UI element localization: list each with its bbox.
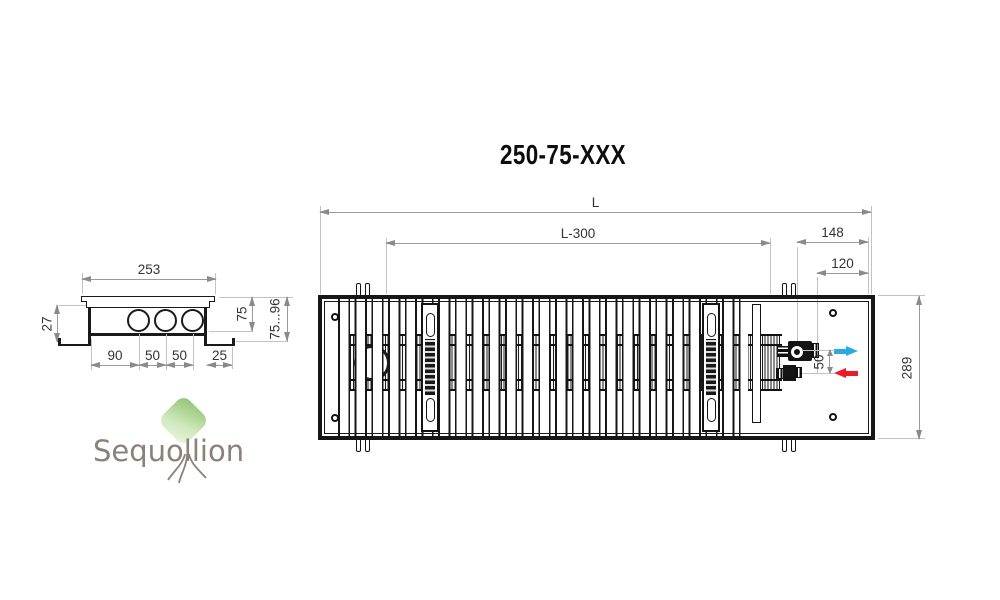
- dim-label: 50: [166, 348, 193, 363]
- flange-right-foot: [204, 344, 235, 347]
- anchor-tab: [365, 283, 370, 296]
- dim-pipe-gap: 50: [829, 350, 830, 373]
- dim-label: 75: [235, 306, 250, 321]
- pipe-circle-1: [127, 309, 150, 332]
- dim-label: 289: [900, 356, 915, 379]
- dim-label: 27: [40, 316, 55, 331]
- dim-arrow: [916, 430, 922, 440]
- bracket-slot: [426, 313, 435, 337]
- flange-left-foot: [58, 344, 91, 347]
- dim-left-height: 27: [57, 305, 58, 342]
- extension-line: [209, 331, 253, 332]
- dim-total-length: L: [320, 212, 871, 213]
- drawing-title: 250-75-XXX: [475, 139, 651, 171]
- top-view: [318, 295, 875, 440]
- dim-flange-overhang: 25: [207, 365, 232, 366]
- dim-total-width: 289: [919, 296, 920, 439]
- dim-pipe-spacing-3: 50: [166, 365, 193, 366]
- supply-arrow-head: [846, 346, 858, 356]
- bracket-slot: [707, 398, 716, 422]
- anchor-tab: [791, 439, 796, 452]
- dim-grille-length: L-300: [386, 243, 770, 244]
- bracket-slot: [426, 398, 435, 422]
- screw-hole: [331, 313, 339, 321]
- dim-arrow: [249, 296, 255, 306]
- dim-arrow: [284, 296, 290, 306]
- return-flow-arrow-icon: [834, 368, 858, 379]
- pipe-circle-2: [154, 309, 177, 332]
- dim-arrow: [249, 322, 255, 332]
- screw-hole: [331, 414, 339, 422]
- dim-arrow: [827, 367, 833, 374]
- flange-right-tick: [232, 338, 235, 347]
- screw-hole: [829, 309, 837, 317]
- anchor-tab: [356, 283, 361, 296]
- dim-arrow: [827, 349, 833, 356]
- brand-logo: Sequollion: [85, 398, 295, 488]
- pipe-circle-3: [181, 309, 204, 332]
- dim-height-range: 75...96: [287, 297, 288, 341]
- dim-arrow: [916, 295, 922, 305]
- dim-pipe-spacing-2: 50: [139, 365, 166, 366]
- dim-label: 90: [91, 348, 139, 363]
- dim-label: 50: [139, 348, 166, 363]
- dim-label: 148: [797, 225, 868, 240]
- anchor-tab: [365, 439, 370, 452]
- roll-up-grille-slats: [338, 299, 748, 436]
- extension-line: [871, 206, 872, 294]
- valve-lower-tip: [795, 367, 802, 378]
- dim-label: 25: [207, 348, 232, 363]
- extension-line: [868, 237, 869, 294]
- dim-label: 75...96: [268, 298, 283, 339]
- technical-drawing-page: 250-75-XXX 253 27: [0, 0, 1000, 600]
- dim-label: 253: [82, 262, 216, 277]
- dim-connection-offset-inner: 120: [817, 273, 868, 274]
- divider-slat: [752, 304, 761, 423]
- anchor-tab: [782, 283, 787, 296]
- anchor-tab: [782, 439, 787, 452]
- anchor-tab: [356, 439, 361, 452]
- dim-top-width: 253: [82, 279, 216, 280]
- mounting-bracket-right: [702, 303, 720, 432]
- dim-label: L: [320, 195, 871, 210]
- dim-connection-offset-outer: 148: [797, 242, 868, 243]
- extension-line: [386, 238, 387, 294]
- extension-line: [236, 341, 288, 342]
- supply-arrow-bar: [834, 349, 846, 354]
- dim-arrow: [284, 332, 290, 342]
- screw-hole: [829, 413, 837, 421]
- dim-inner-height: 75: [252, 297, 253, 331]
- anchor-tab: [791, 283, 796, 296]
- dim-pipe-spacing-1: 90: [91, 365, 139, 366]
- bracket-ladder: [706, 339, 716, 395]
- valve-upper-ring: [791, 346, 803, 358]
- bracket-slot: [707, 313, 716, 337]
- supply-flow-arrow-icon: [834, 346, 858, 357]
- return-arrow-bar: [846, 371, 858, 376]
- extension-line: [59, 305, 86, 306]
- dim-label: 50: [812, 354, 827, 369]
- dim-arrow: [54, 333, 60, 343]
- brand-name: Sequollion: [93, 434, 244, 468]
- dim-arrow: [54, 304, 60, 314]
- return-arrow-head: [834, 368, 846, 378]
- bracket-ladder: [425, 339, 435, 395]
- extension-line: [770, 238, 771, 294]
- dim-label: 120: [817, 256, 868, 271]
- extension-line: [320, 206, 321, 294]
- mounting-bracket-left: [421, 303, 439, 432]
- dim-label: L-300: [386, 226, 770, 241]
